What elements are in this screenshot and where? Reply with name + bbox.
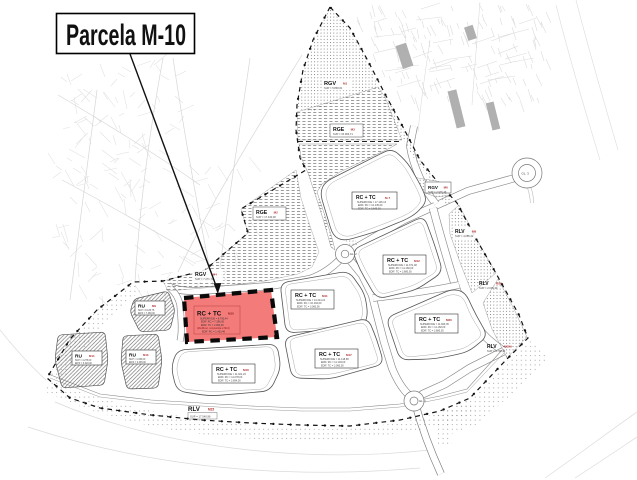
svg-text:RLV: RLV [455, 229, 465, 235]
svg-text:SUP = 15.093,71: SUP = 15.093,71 [333, 132, 353, 136]
svg-text:M18: M18 [496, 282, 502, 286]
svg-text:M16: M16 [243, 368, 249, 372]
svg-text:RU: RU [129, 352, 136, 358]
svg-text:M15: M15 [208, 408, 214, 412]
svg-text:EDIF. TC = 2.694,00: EDIF. TC = 2.694,00 [218, 379, 241, 382]
svg-text:EDIF. TC = 2.060,00: EDIF. TC = 2.060,00 [321, 364, 344, 367]
svg-text:RLV: RLV [479, 281, 489, 287]
svg-text:SUP = 8.125,75: SUP = 8.125,75 [138, 310, 155, 312]
svg-text:GL. 1: GL. 1 [419, 399, 426, 403]
svg-text:M14: M14 [89, 354, 95, 358]
svg-text:EDIF. TC = 3.645,00: EDIF. TC = 3.645,00 [358, 207, 381, 210]
svg-text:EDIF. TC = 2.680,00: EDIF. TC = 2.680,00 [421, 329, 444, 332]
svg-text:SUP = 2.976,46: SUP = 2.976,46 [428, 190, 447, 194]
svg-text:RGE: RGE [256, 210, 268, 216]
svg-text:M3: M3 [351, 128, 355, 132]
svg-text:EDIF = 3.465,00: EDIF = 3.465,00 [129, 362, 147, 364]
svg-text:M8: M8 [472, 230, 476, 234]
svg-text:EDIF. TC = 2.680,00: EDIF. TC = 2.680,00 [389, 270, 412, 273]
svg-text:SUP = 17.440,00: SUP = 17.440,00 [256, 215, 276, 219]
svg-text:M12: M12 [414, 259, 420, 263]
svg-text:EDIF. RC = 1.433,46: EDIF. RC = 1.433,46 [202, 330, 226, 333]
svg-text:RGV: RGV [195, 272, 207, 278]
svg-text:EDIF. TC = 3.060,00: EDIF. TC = 3.060,00 [297, 305, 320, 308]
svg-text:EDIF = 3.420,00: EDIF = 3.420,00 [75, 363, 93, 365]
svg-text:M18A: M18A [504, 345, 513, 349]
svg-text:SUP = 4.330,00: SUP = 4.330,00 [129, 359, 146, 361]
svg-text:EDIF = 7.480,00: EDIF = 7.480,00 [138, 313, 156, 315]
svg-text:SUP = 17.540,96: SUP = 17.540,96 [190, 414, 211, 418]
svg-text:SUP = 4.700,44: SUP = 4.700,44 [487, 349, 506, 353]
svg-text:M20: M20 [446, 318, 452, 322]
svg-text:M9: M9 [152, 304, 156, 308]
svg-text:M13: M13 [143, 353, 149, 357]
svg-text:SUP = 2.005,30: SUP = 2.005,30 [479, 286, 498, 290]
svg-text:M4: M4 [213, 273, 217, 277]
svg-text:M1: M1 [343, 82, 347, 86]
svg-text:M17: M17 [346, 353, 352, 357]
svg-text:SUP = 7.271,71: SUP = 7.271,71 [195, 277, 214, 281]
svg-text:RGV: RGV [428, 185, 439, 190]
svg-text:GL. 3: GL. 3 [522, 172, 530, 176]
svg-text:SUP = 4.085,22: SUP = 4.085,22 [455, 234, 474, 238]
svg-text:M-7: M-7 [385, 196, 390, 200]
svg-text:SUP = 4.275,00: SUP = 4.275,00 [75, 360, 92, 362]
svg-text:RLV: RLV [188, 406, 201, 413]
svg-text:RGV: RGV [324, 81, 336, 87]
svg-text:RGE: RGE [333, 127, 345, 133]
svg-text:Parcela M-10: Parcela M-10 [66, 19, 186, 52]
svg-text:M10: M10 [228, 312, 234, 316]
svg-text:SUP = 5.893,61: SUP = 5.893,61 [324, 86, 343, 90]
svg-text:RLV: RLV [487, 344, 497, 350]
svg-text:M2: M2 [274, 211, 278, 215]
svg-text:M6: M6 [444, 186, 448, 190]
svg-text:RU: RU [138, 303, 145, 309]
svg-text:GL. 2: GL. 2 [350, 252, 357, 256]
svg-text:RU: RU [75, 353, 82, 359]
svg-text:M11: M11 [322, 294, 328, 298]
